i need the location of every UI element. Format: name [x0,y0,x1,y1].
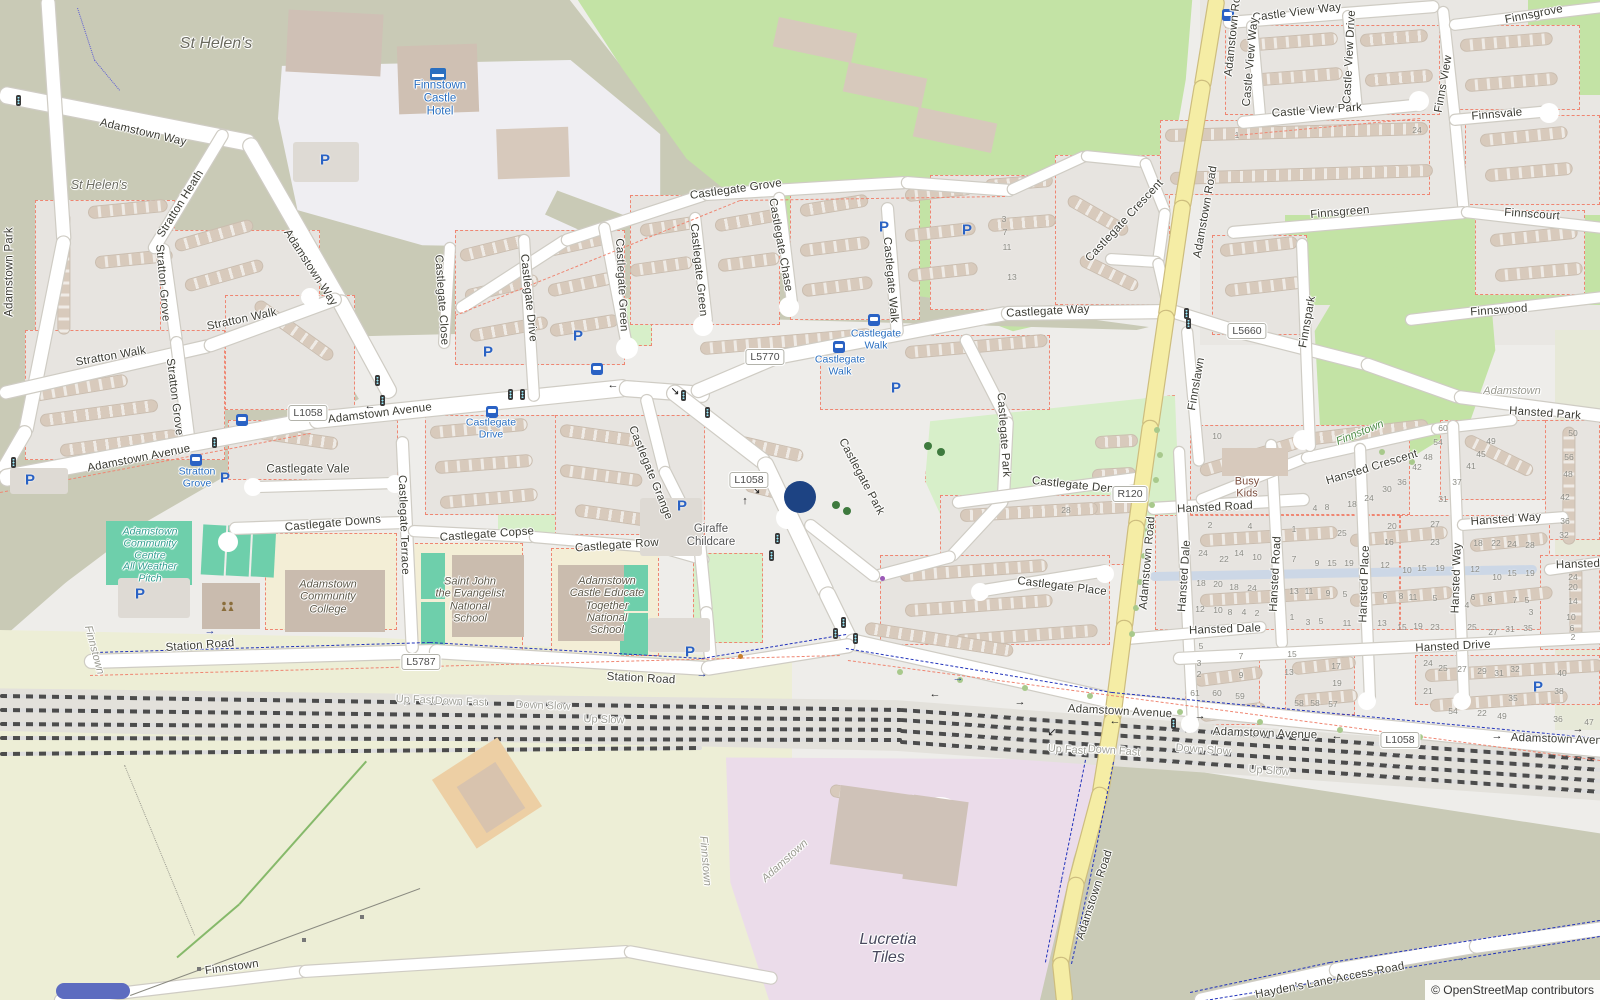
house-number: 15 [1417,563,1426,573]
street-tree [1177,709,1183,715]
house-number: 36 [1397,477,1406,487]
house-number: 30 [1382,484,1391,494]
house-number: 32 [1559,530,1568,540]
house-number: 18 [1347,499,1356,509]
house-number: 7 [1239,651,1244,661]
oneway-arrow: ↘ [670,385,679,398]
oneway-arrow: → [1455,952,1466,964]
bus-glyph [835,344,843,348]
power-pole [302,938,306,942]
house-number: 56 [1564,452,1573,462]
house-number: 12 [1470,564,1479,574]
house-number: 38 [1554,686,1563,696]
house-number: 13 [1289,586,1298,596]
house-number: 59 [1235,691,1244,701]
bus-stop-icon [868,314,880,326]
area-pitch [421,553,445,599]
house-number: 60 [1438,423,1447,433]
house-number: 6 [1471,592,1476,602]
parking-icon: P [25,472,35,489]
house-number: 50 [1568,428,1577,438]
bus-stop-icon [190,454,202,466]
tree-icon [937,448,945,456]
house-number: 35 [1508,693,1517,703]
house-number: 12 [1195,604,1204,614]
house-number: 57 [1328,699,1337,709]
house-number: 49 [1486,436,1495,446]
location-marker[interactable] [784,481,816,513]
bus-glyph [593,366,601,370]
street-tree [1154,427,1160,433]
house-number: 4 [1242,607,1247,617]
tree-icon [843,507,851,515]
house-number: 6 [1383,591,1388,601]
house-number: 60 [1212,688,1221,698]
culdesac-bulb [616,337,638,359]
road-segment [253,478,399,492]
house-number: 48 [1563,469,1572,479]
building-school [452,555,524,637]
road-segment [1002,304,1176,319]
house-number: 24 [1364,493,1373,503]
oneway-arrow: → [697,668,708,680]
building-school [558,565,624,641]
traffic-signal-icon [1171,718,1176,729]
culdesac-bulb [244,478,262,496]
house-number: 14 [1234,548,1243,558]
culdesac-bulb [1293,430,1313,450]
street-tree [1349,435,1355,441]
oneway-arrow: → [1195,710,1206,722]
house-number: 36 [1553,714,1562,724]
house-number: 20 [1387,521,1396,531]
building [285,10,383,77]
parking-icon: P [891,380,901,397]
house-number: 36 [1560,516,1569,526]
house-number: 13 [1284,667,1293,677]
house-number: 41 [1466,461,1475,471]
house-number: 2 [1197,669,1202,679]
house-number: 4 [1248,521,1253,531]
traffic-signal-icon [853,633,858,644]
house-number: 16 [1384,537,1393,547]
street-tree [1157,452,1163,458]
house-number: 37 [1452,477,1461,487]
house-number: 27 [1488,627,1497,637]
house-number: 22 [1491,538,1500,548]
road-segment [1182,327,1205,466]
house-number: 25 [1337,528,1346,538]
house-number: 10 [1492,572,1501,582]
traffic-signal-icon [375,375,380,386]
house-number: 42 [1560,492,1569,502]
house-number: 54 [1448,706,1457,716]
house-number: 28 [1061,505,1070,515]
house-number: 19 [1413,621,1422,631]
street-tree [897,669,903,675]
house-number: 7 [1292,554,1297,564]
tree-icon [924,442,932,450]
oneway-arrow: ← [930,688,941,700]
house-number: 35 [1523,623,1532,633]
house-number: 7 [1003,227,1008,237]
oneway-arrow: ← [1332,730,1343,742]
house-number: 1 [1290,612,1295,622]
house-number: 8 [1325,502,1330,512]
house-number: 17 [1331,661,1340,671]
house-number: 1 [1235,130,1240,140]
culdesac-bulb [301,288,319,306]
oneway-arrow: ↙ [1047,726,1056,739]
house-number: 18 [1229,582,1238,592]
power-pole [197,967,201,971]
house-number: 10 [1402,565,1411,575]
traffic-signal-icon [775,533,780,544]
house-number: 31 [1494,668,1503,678]
house-number: 3 [1529,607,1534,617]
oneway-arrow: → [205,625,216,637]
house-number: 21 [1423,686,1432,696]
street-tree [1137,579,1143,585]
building-industrial [902,795,968,887]
street-tree [1129,631,1135,637]
house-number: 19 [1332,678,1341,688]
bus-stop-icon [833,341,845,353]
parking-icon: P [320,152,330,169]
map-canvas[interactable]: © OpenStreetMap contributors Adamstown W… [0,0,1600,1000]
house-number: 5 [1319,616,1324,626]
traffic-signal-icon [841,617,846,628]
parking-icon: P [962,222,972,239]
house-number: 25 [1438,663,1447,673]
house-number: 58 [1294,698,1303,708]
oneway-arrow: ← [608,379,619,391]
house-number: 40 [1557,668,1566,678]
house-number: 2 [1571,632,1576,642]
area-farmland-sw [0,630,792,1000]
house-number: 31 [1505,624,1514,634]
oneway-arrow: ← [1295,979,1306,991]
house-number: 5 [1199,641,1204,651]
house-number: 9 [1315,558,1320,568]
parking-icon: P [573,328,583,345]
house-number: 3 [1306,617,1311,627]
street-tree [1022,685,1028,691]
culdesac-bulb [1358,692,1376,710]
street-tree [1379,449,1385,455]
street-tree [1141,553,1147,559]
house-number: 49 [1497,711,1506,721]
map-area [620,613,648,655]
parking-lot [118,578,190,618]
house-number: 12 [1380,560,1389,570]
culdesac-bulb [1096,565,1114,583]
house-number: 24 [1247,583,1256,593]
house-number: 54 [1433,437,1442,447]
house-number: 2 [1208,520,1213,530]
oneway-arrow: ↑ [742,495,748,507]
house-number: 5 [1433,593,1438,603]
parking-icon: P [1533,679,1543,696]
map-attribution: © OpenStreetMap contributors [1425,980,1600,1000]
house-number: 1 [1292,524,1297,534]
house-number: 8 [1488,594,1493,604]
bus-glyph [1224,12,1232,16]
oneway-arrow: → [1492,730,1503,742]
house-number: 47 [1584,717,1593,727]
terrace-row [1095,433,1139,448]
house-number: 42 [1412,462,1421,472]
route-shield: L5660 [1227,323,1266,339]
house-number: 28 [1525,540,1534,550]
building-community-college [285,570,385,632]
bus-stop-icon [591,363,603,375]
house-number: 8 [1399,591,1404,601]
house-number: 2 [1255,608,1260,618]
bed-glyph [432,74,444,77]
house-number: 15 [1327,558,1336,568]
parking-icon: P [135,586,145,603]
route-shield: L5787 [401,654,440,670]
culdesac-bulb [1539,103,1559,123]
house-number: 13 [1377,618,1386,628]
traffic-signal-icon [520,389,525,400]
bus-glyph [238,417,246,421]
house-number: 45 [1476,449,1485,459]
traffic-signal-icon [16,95,21,106]
map-area [624,565,648,611]
house-number: 24 [1423,658,1432,668]
bus-glyph [870,317,878,321]
traffic-signal-icon [1186,318,1191,329]
house-number: 29 [1477,666,1486,676]
traffic-signal-icon [380,395,385,406]
traffic-signal-icon [833,628,838,639]
bus-glyph [192,457,200,461]
terrace-row [1562,426,1575,544]
house-number: 23 [1430,622,1439,632]
hotel-bed-icon [430,68,446,80]
bus-glyph [488,409,496,413]
house-number: 19 [1435,563,1444,573]
oneway-arrow: ← [365,400,376,412]
culdesac-bulb [386,475,404,493]
house-number: 9 [1239,670,1244,680]
poi-dot-purple [880,576,885,581]
house-number: 24 [1412,125,1421,135]
route-shield: R120 [1112,486,1147,502]
house-number: 9 [1326,588,1331,598]
traffic-signal-icon [681,390,686,401]
route-shield: L1058 [729,472,768,488]
parking-icon: P [483,344,493,361]
street-label: Castlegate Park [835,437,886,518]
house-number: 20 [1213,579,1222,589]
house-number: 14 [1568,596,1577,606]
culdesac-bulb [218,532,238,552]
house-number: 31 [1438,494,1447,504]
house-number: 27 [1430,519,1439,529]
house-number: 24 [1507,539,1516,549]
bus-stop-icon [236,414,248,426]
house-number: 11 [1409,592,1418,602]
bus-stop-icon [1222,9,1234,21]
route-shield: L1058 [288,405,327,421]
house-number: 18 [1473,538,1482,548]
map-area [251,526,277,577]
parking-icon: P [677,498,687,515]
house-number: 18 [1196,578,1205,588]
house-number: 11 [1343,618,1352,628]
house-number: 5 [1343,589,1348,599]
parking-lot [10,468,68,494]
tree-icon [832,501,840,509]
culdesac-bulb [779,297,799,317]
oneway-arrow: → [1573,723,1584,735]
oneway-arrow: → [1015,696,1026,708]
house-number: 10 [1566,612,1575,622]
house-number: 10 [1212,431,1221,441]
parking-lot [640,498,702,556]
house-number: 25 [1467,622,1476,632]
house-number: 13 [1007,272,1016,282]
house-number: 22 [1219,554,1228,564]
parking-icon: P [220,470,230,487]
house-number: 22 [1477,708,1486,718]
house-number: 8 [1228,607,1233,617]
house-number: 7 [1513,595,1518,605]
house-number: 15 [1287,649,1296,659]
house-number: 48 [1423,452,1432,462]
street-tree [1149,502,1155,508]
culdesac-bulb [1409,91,1429,111]
road-segment [230,516,406,533]
traffic-signal-icon [508,389,513,400]
house-number: 11 [1305,586,1314,596]
house-number: 58 [1310,698,1319,708]
route-shield: L5770 [745,349,784,365]
parking-icon: P [879,219,889,236]
route-shield: L1058 [1380,732,1419,748]
building [496,127,570,179]
street-tree [1257,719,1263,725]
house-number: 4 [1465,600,1470,610]
bus-stop-icon [486,406,498,418]
street-tree [1145,527,1151,533]
house-number: 19 [1344,558,1353,568]
house-number: 27 [1457,664,1466,674]
house-number: 15 [1507,568,1516,578]
house-number: 5 [1525,595,1530,605]
map-area [421,602,445,646]
house-number: 23 [1430,537,1439,547]
house-number: 32 [1510,664,1519,674]
traffic-signal-icon [705,407,710,418]
house-number: 3 [1002,214,1007,224]
traffic-signal-icon [11,457,16,468]
house-number: 20 [1568,582,1577,592]
house-number: 19 [1525,568,1534,578]
house-number: 4 [1313,503,1318,513]
street-tree [1087,693,1093,699]
traffic-signal-icon [212,437,217,448]
cycleway-blue [846,648,1112,693]
house-number: 15 [1397,622,1406,632]
house-number: 10 [1213,605,1222,615]
culdesac-bulb [971,583,989,601]
culdesac-bulb [693,316,713,336]
house-number: 11 [1003,242,1012,252]
traffic-signal-icon [769,550,774,561]
house-number: 3 [1197,658,1202,668]
house-number: 10 [1252,552,1261,562]
street-tree [1133,605,1139,611]
area-all-weather-pitch [106,521,192,585]
road-stub-blue [56,983,130,999]
oneway-arrow: → [953,672,964,684]
parking-lot [648,618,710,652]
house-number: 61 [1190,688,1199,698]
house-number: 24 [1568,572,1577,582]
oneway-arrow: ← [1110,715,1121,727]
building-busy-kids [1222,448,1288,476]
street-tree [1153,477,1159,483]
house-number: 24 [1198,548,1207,558]
parking-icon: P [685,644,695,661]
poi-dot-orange [738,654,743,659]
power-pole [360,915,364,919]
